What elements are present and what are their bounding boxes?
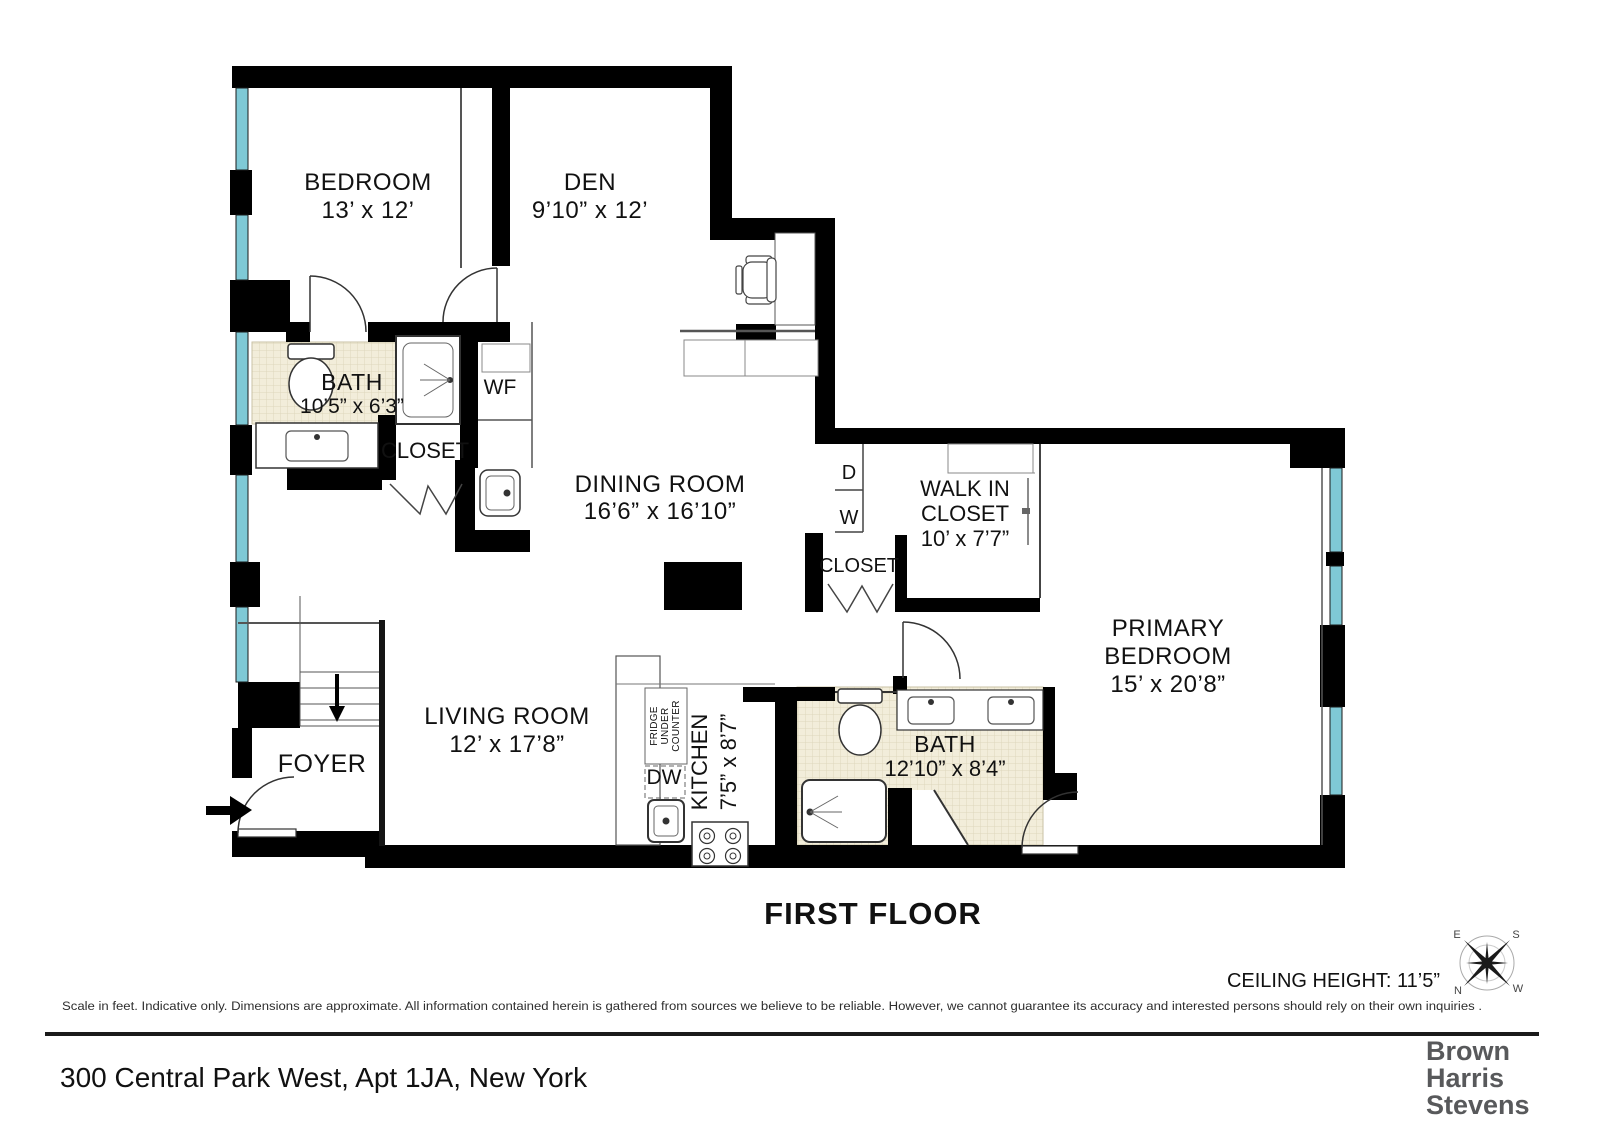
double-vanity-icon [897,690,1043,730]
foyer-label: FOYER [278,750,367,778]
walkin-closet-label-1: WALK IN [920,476,1010,501]
dining-room-dims: 16’6” x 16’10” [584,498,736,525]
ceiling-height-label: CEILING HEIGHT: 11’5” [1227,970,1440,992]
closet1-label: CLOSET [381,438,469,463]
utility-sink-icon [480,470,520,516]
built-in-cabinet [684,340,818,376]
den-label: DEN [564,169,616,196]
bedroom-dims: 13’ x 12’ [322,197,415,224]
address-text: 300 Central Park West, Apt 1JA, New York [60,1062,588,1093]
fridge-label-3: COUNTER [671,700,682,752]
bath2-dims: 12’10” x 8’4” [884,756,1005,781]
living-room-label: LIVING ROOM [424,703,590,730]
primary-bedroom-dims: 15’ x 20’8” [1110,671,1225,698]
bedroom-label: BEDROOM [304,169,432,196]
brand-logo: Brown Harris Stevens [1426,1036,1530,1120]
entry-arrow-icon [206,796,252,825]
toilet-icon [838,689,882,755]
bath1-dims: 10’5” x 6’3” [300,395,404,418]
den-dims: 9’10” x 12’ [532,197,648,224]
bifold-door-icon [390,484,462,514]
brand-line-2: Harris [1426,1063,1504,1093]
compass-n-label: N [1454,985,1462,997]
window-icon [236,332,248,425]
floor-title: FIRST FLOOR [764,896,982,931]
shower-icon [802,780,886,842]
brand-line-3: Stevens [1426,1090,1530,1120]
bifold-door-icon [828,584,893,612]
den-desk [775,233,815,325]
window-icon [1330,468,1342,552]
bath2-label: BATH [914,731,976,757]
primary-bedroom-label-2: BEDROOM [1104,643,1232,670]
range-icon [692,822,748,866]
closet2-label: CLOSET [819,555,899,577]
window-icon [1330,566,1342,625]
dining-room-label: DINING ROOM [575,471,746,498]
window-icon [1330,707,1342,795]
kitchen-sink-icon [648,800,684,842]
walkin-closet-label-2: CLOSET [921,501,1009,526]
door-swing-arc [310,276,366,332]
compass-rose-icon: E S N W [1453,929,1523,997]
walkin-closet-dims: 10’ x 7’7” [921,526,1009,551]
door-leaf [1022,846,1078,854]
compass-e-label: E [1453,929,1460,941]
window-icon [236,475,248,562]
kitchen-label: KITCHEN [687,714,712,811]
entry-door-leaf [238,829,296,837]
wf-cabinet [482,344,530,372]
living-room-dims: 12’ x 17’8” [449,731,564,758]
door-swing-arc [443,268,497,322]
disclaimer-text: Scale in feet. Indicative only. Dimensio… [62,999,1482,1013]
fridge-label-1: FRIDGE [649,706,660,746]
brand-line-1: Brown [1426,1036,1510,1066]
stairs-down-arrow-icon [329,674,345,722]
shower-icon [396,336,460,424]
door-swing-arc [903,622,960,679]
entry-door-arc [238,777,294,833]
window-icon [236,88,248,170]
desk-chair-icon [736,256,776,304]
window-icon [236,607,248,682]
primary-bedroom-label-1: PRIMARY [1112,615,1224,642]
floor-plan-page: BEDROOM 13’ x 12’ DEN 9’10” x 12’ BATH 1… [0,0,1600,1131]
window-icon [236,215,248,280]
closet-rod-bracket [1022,508,1030,514]
vanity-sink-icon [256,423,378,468]
dishwasher-label: DW [647,766,682,789]
closet-shelf [948,444,1033,473]
fridge-label-2: UNDER [660,707,671,744]
kitchen-dims: 7’5” x 8’7” [716,714,741,811]
compass-s-label: S [1512,929,1519,941]
bath1-label: BATH [321,369,383,395]
washer-label: W [840,507,859,529]
dryer-label: D [842,462,856,484]
compass-w-label: W [1513,983,1524,995]
footer-divider [45,1032,1539,1036]
wf-label: WF [484,376,517,399]
